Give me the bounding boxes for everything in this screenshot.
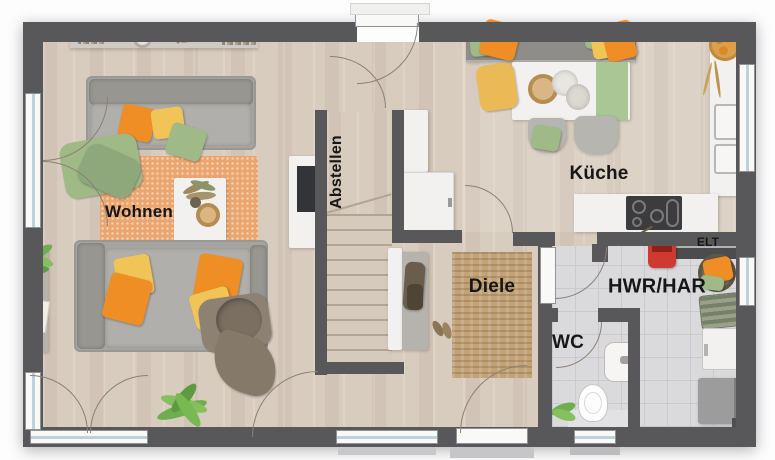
flower-bouquet-2 [566,84,590,110]
toilet-seat-inner [584,392,602,414]
sofa-top-back-cushions [89,79,253,105]
sink-basin-2 [714,144,738,174]
chair-yellow [475,62,519,113]
washing-machine-handle [704,344,708,356]
entrance-step [450,447,534,458]
coat-console-panel [388,248,402,350]
hall-rug [452,252,532,378]
woven-tray [196,203,220,227]
room-label-living: Wohnen [105,202,173,222]
outer-wall-top-right [419,22,756,42]
burner-zone [666,199,679,227]
sofa-bottom-back [77,243,105,349]
stair-wall-right [392,110,404,240]
wardrobe [402,172,454,238]
room-label-hall: Diele [469,276,515,298]
window-bottom-wc [574,430,616,444]
room-label-storage: Abstellen [328,135,346,209]
utility-door-panel-open [540,247,556,304]
staircase [327,214,392,362]
window-left-french-door [25,93,41,228]
room-label-utility: HWR/HAR [608,276,706,299]
wc-wall-right [628,308,640,427]
stair-wall-bottom [315,362,404,374]
fruit-3 [719,46,728,55]
burner-3 [650,209,664,223]
wardrobe-handle [448,198,452,207]
coat-dark [407,284,423,310]
burner-1 [632,200,646,214]
chair-cloth-green [530,124,562,152]
room-label-wc: WC [552,332,584,354]
table-runner [596,62,628,120]
window-right-kitchen [739,64,755,172]
stair-wall-left [315,110,327,375]
chair-gray-2 [574,116,618,154]
living-window-sill [338,447,436,455]
window-bottom-living [336,430,438,444]
entry-door-canopy [350,3,430,15]
tv-screen [297,166,315,212]
floor-plan: Wohnen Abstellen Küche Diele WC HWR/HAR … [0,0,775,460]
tall-cabinet [402,110,428,172]
burner-2 [632,217,642,227]
hall-wall-horizontal [392,230,462,243]
room-label-kitchen: Küche [569,163,628,185]
sink-basin-1 [714,104,738,140]
wc-window-sill [570,447,620,455]
red-appliance-stripe [652,246,672,252]
window-right-utility [739,257,755,306]
room-label-electrical: ELT [697,235,719,249]
outer-wall-top-left [23,22,357,42]
wc-wall-stub [552,308,558,322]
